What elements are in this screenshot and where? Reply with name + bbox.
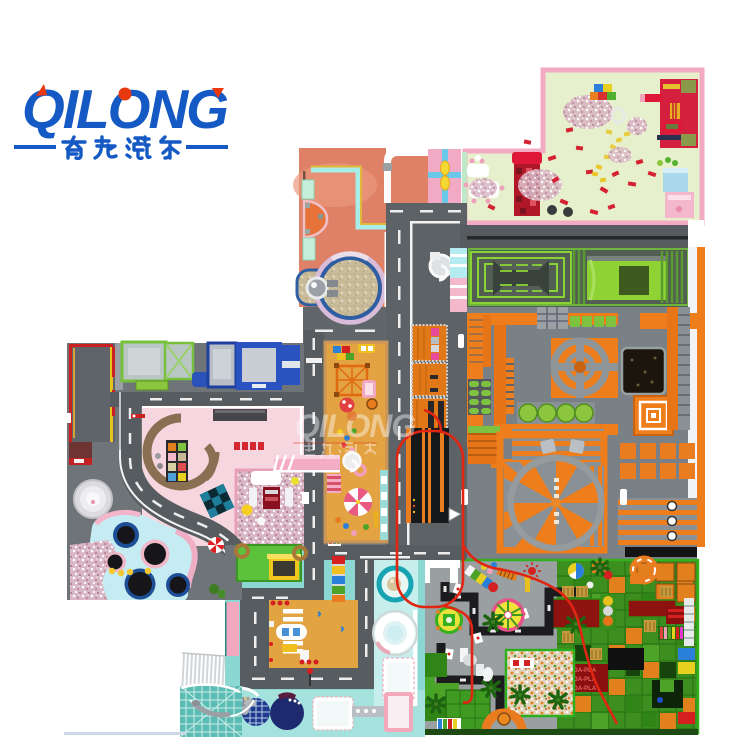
svg-text:QILONG: QILONG — [22, 78, 228, 140]
